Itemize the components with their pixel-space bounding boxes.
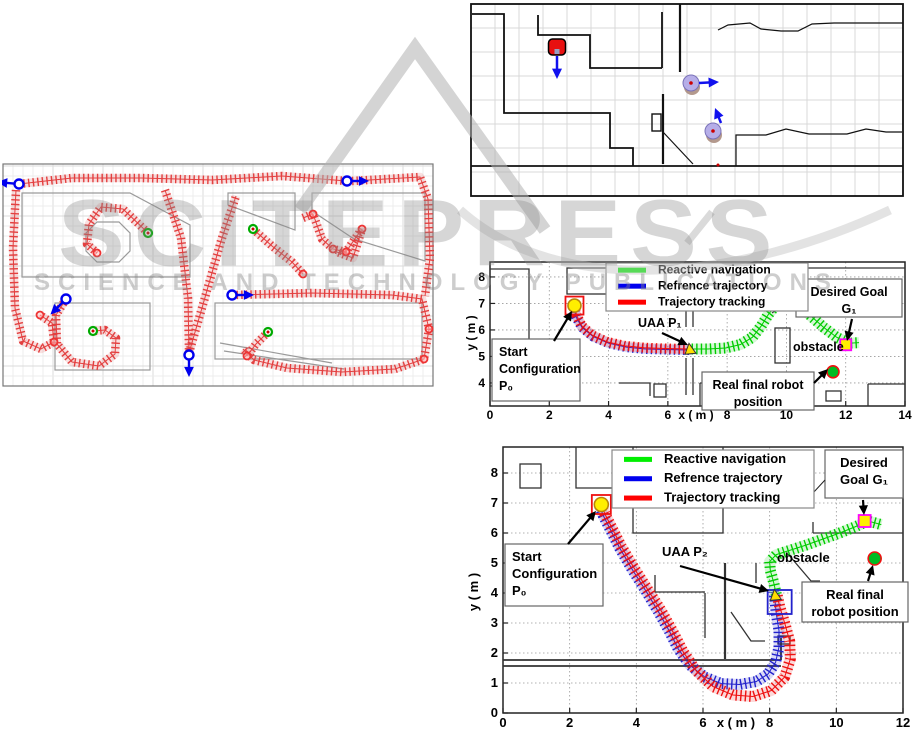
waypoint-node <box>244 353 251 360</box>
y-tick-label: 4 <box>478 376 485 390</box>
x-tick-label: 12 <box>839 408 853 422</box>
robot-pose-marker <box>228 291 237 300</box>
legend-label: Refrence trajectory <box>658 279 768 293</box>
waypoint-node <box>359 226 366 233</box>
annotation-text: Desired Goal <box>810 285 887 299</box>
legend-label: Refrence trajectory <box>664 470 783 485</box>
annotation-text: obstacle <box>793 340 844 354</box>
obstacle-rect <box>775 328 790 363</box>
environment-map-panel <box>2 163 434 387</box>
goal-marker <box>859 515 871 527</box>
annotation-text: Goal G₁ <box>840 472 888 487</box>
annotation-text: obstacle <box>777 550 830 565</box>
wall-segment <box>718 23 903 31</box>
wall-segment <box>619 383 650 396</box>
y-tick-label: 1 <box>491 675 498 690</box>
annotation-text: G₁ <box>842 302 857 316</box>
y-tick-label: 6 <box>478 323 485 337</box>
arrow <box>554 316 569 341</box>
x-tick-label: 8 <box>766 715 773 730</box>
sim-map-panel <box>466 2 906 208</box>
wall-segment <box>654 384 666 397</box>
arrow <box>568 515 593 544</box>
y-tick-label: 8 <box>478 270 485 284</box>
x-tick-label: 10 <box>829 715 843 730</box>
wall-segment <box>520 464 541 488</box>
x-tick-label: 0 <box>499 715 506 730</box>
watermark-slash-icon <box>687 212 712 243</box>
waypoint-node <box>343 249 350 256</box>
x-tick-label: 12 <box>896 715 910 730</box>
legend-swatch <box>618 300 646 305</box>
annotation-text: UAA P₁ <box>638 316 682 330</box>
waypoint-node <box>421 356 428 363</box>
robot-pose-marker <box>185 351 194 360</box>
wall-segment <box>652 114 661 131</box>
robot-position-marker <box>827 366 839 378</box>
y-axis-label: y ( m ) <box>466 573 481 611</box>
annotation-text: Configuration <box>499 362 581 376</box>
y-tick-label: 5 <box>478 349 485 363</box>
x-tick-label: 4 <box>633 715 641 730</box>
annotation-text: P₀ <box>512 583 527 598</box>
sim-map-grid <box>471 4 903 196</box>
annotation-text: Configuration <box>512 566 597 581</box>
robot-position-marker <box>568 299 581 312</box>
annotation-text: UAA P₂ <box>662 544 708 559</box>
waypoint-node <box>310 211 317 218</box>
annotation-text: Start <box>499 345 528 359</box>
callout-leader <box>813 480 825 493</box>
annotation-text: position <box>734 395 783 409</box>
wall-segment <box>490 269 529 345</box>
x-tick-label: 6 <box>699 715 706 730</box>
y-axis-label: y ( m ) <box>466 315 478 350</box>
arrow-head <box>552 69 562 79</box>
robot-position-marker <box>868 552 881 565</box>
arrow <box>680 566 764 590</box>
paper-figure-page: 0246810121445678x ( m )y ( m ) StartConf… <box>0 0 912 735</box>
wall-segment <box>655 575 705 592</box>
y-tick-label: 4 <box>491 585 499 600</box>
y-tick-label: 7 <box>491 495 498 510</box>
annotation-text: Real final robot <box>713 378 805 392</box>
round-robot-center <box>689 81 693 85</box>
waypoint-node <box>330 246 337 253</box>
waypoint-node <box>300 271 307 278</box>
y-tick-label: 2 <box>491 645 498 660</box>
arrow-head <box>184 367 194 377</box>
wall-segment <box>633 506 723 533</box>
y-tick-label: 8 <box>491 465 498 480</box>
y-tick-label: 5 <box>491 555 498 570</box>
annotation-text: Desired <box>840 455 888 470</box>
x-tick-label: 2 <box>546 408 553 422</box>
red-robot-hub <box>555 49 560 54</box>
round-robot-center <box>711 129 715 133</box>
wall-segment <box>868 384 905 406</box>
trajectory-plot-2: 024681012012345678x ( m )y ( m ) StartCo… <box>466 440 912 735</box>
annotation-text: P₀ <box>499 379 513 393</box>
start-marker-dot <box>267 331 270 334</box>
legend-swatch <box>618 284 646 289</box>
arrow-head <box>708 78 719 88</box>
waypoint-node <box>51 339 58 346</box>
waypoint-node <box>94 250 101 257</box>
x-tick-label: 2 <box>566 715 573 730</box>
robot-pose-marker <box>62 295 71 304</box>
wall-segment <box>503 638 781 666</box>
x-tick-label: 0 <box>487 408 494 422</box>
legend-label: Reactive navigation <box>664 451 786 466</box>
wall-segment <box>472 14 633 166</box>
legend-swatch <box>624 476 652 481</box>
sim-map-robots <box>549 39 724 167</box>
start-marker-dot <box>147 232 150 235</box>
red-dot <box>717 164 720 167</box>
legend-label: Trajectory tracking <box>664 490 780 505</box>
legend-label: Trajectory tracking <box>658 295 765 309</box>
x-tick-label: 6 <box>665 408 672 422</box>
arrow-head <box>859 505 868 515</box>
legend-swatch <box>618 268 646 273</box>
wall-segment <box>826 391 841 401</box>
y-tick-label: 0 <box>491 705 498 720</box>
plot1-content: StartConfigurationP₀UAA P₁Desired GoalG₁… <box>492 263 902 410</box>
robot-position-marker <box>594 498 608 512</box>
x-tick-label: 4 <box>605 408 612 422</box>
annotation-text: Start <box>512 549 542 564</box>
legend-swatch <box>624 457 652 462</box>
x-tick-label: 14 <box>898 408 912 422</box>
legend-swatch <box>624 496 652 501</box>
y-tick-label: 6 <box>491 525 498 540</box>
waypoint-node <box>426 326 433 333</box>
robot-pose-marker <box>15 180 24 189</box>
robot-pose-marker <box>343 177 352 186</box>
y-tick-label: 7 <box>478 296 485 310</box>
wall-segment <box>731 612 765 641</box>
start-marker-dot <box>252 228 255 231</box>
annotation-text: robot position <box>811 604 898 619</box>
legend-label: Reactive navigation <box>658 263 771 277</box>
waypoint-node <box>37 312 44 319</box>
arrow-head <box>866 565 875 575</box>
y-tick-label: 3 <box>491 615 498 630</box>
trajectory-plot-1: 0246810121445678x ( m )y ( m ) StartConf… <box>466 255 912 432</box>
annotation-text: Real final <box>826 587 884 602</box>
x-axis-label: x ( m ) <box>717 715 755 730</box>
start-marker-dot <box>92 330 95 333</box>
